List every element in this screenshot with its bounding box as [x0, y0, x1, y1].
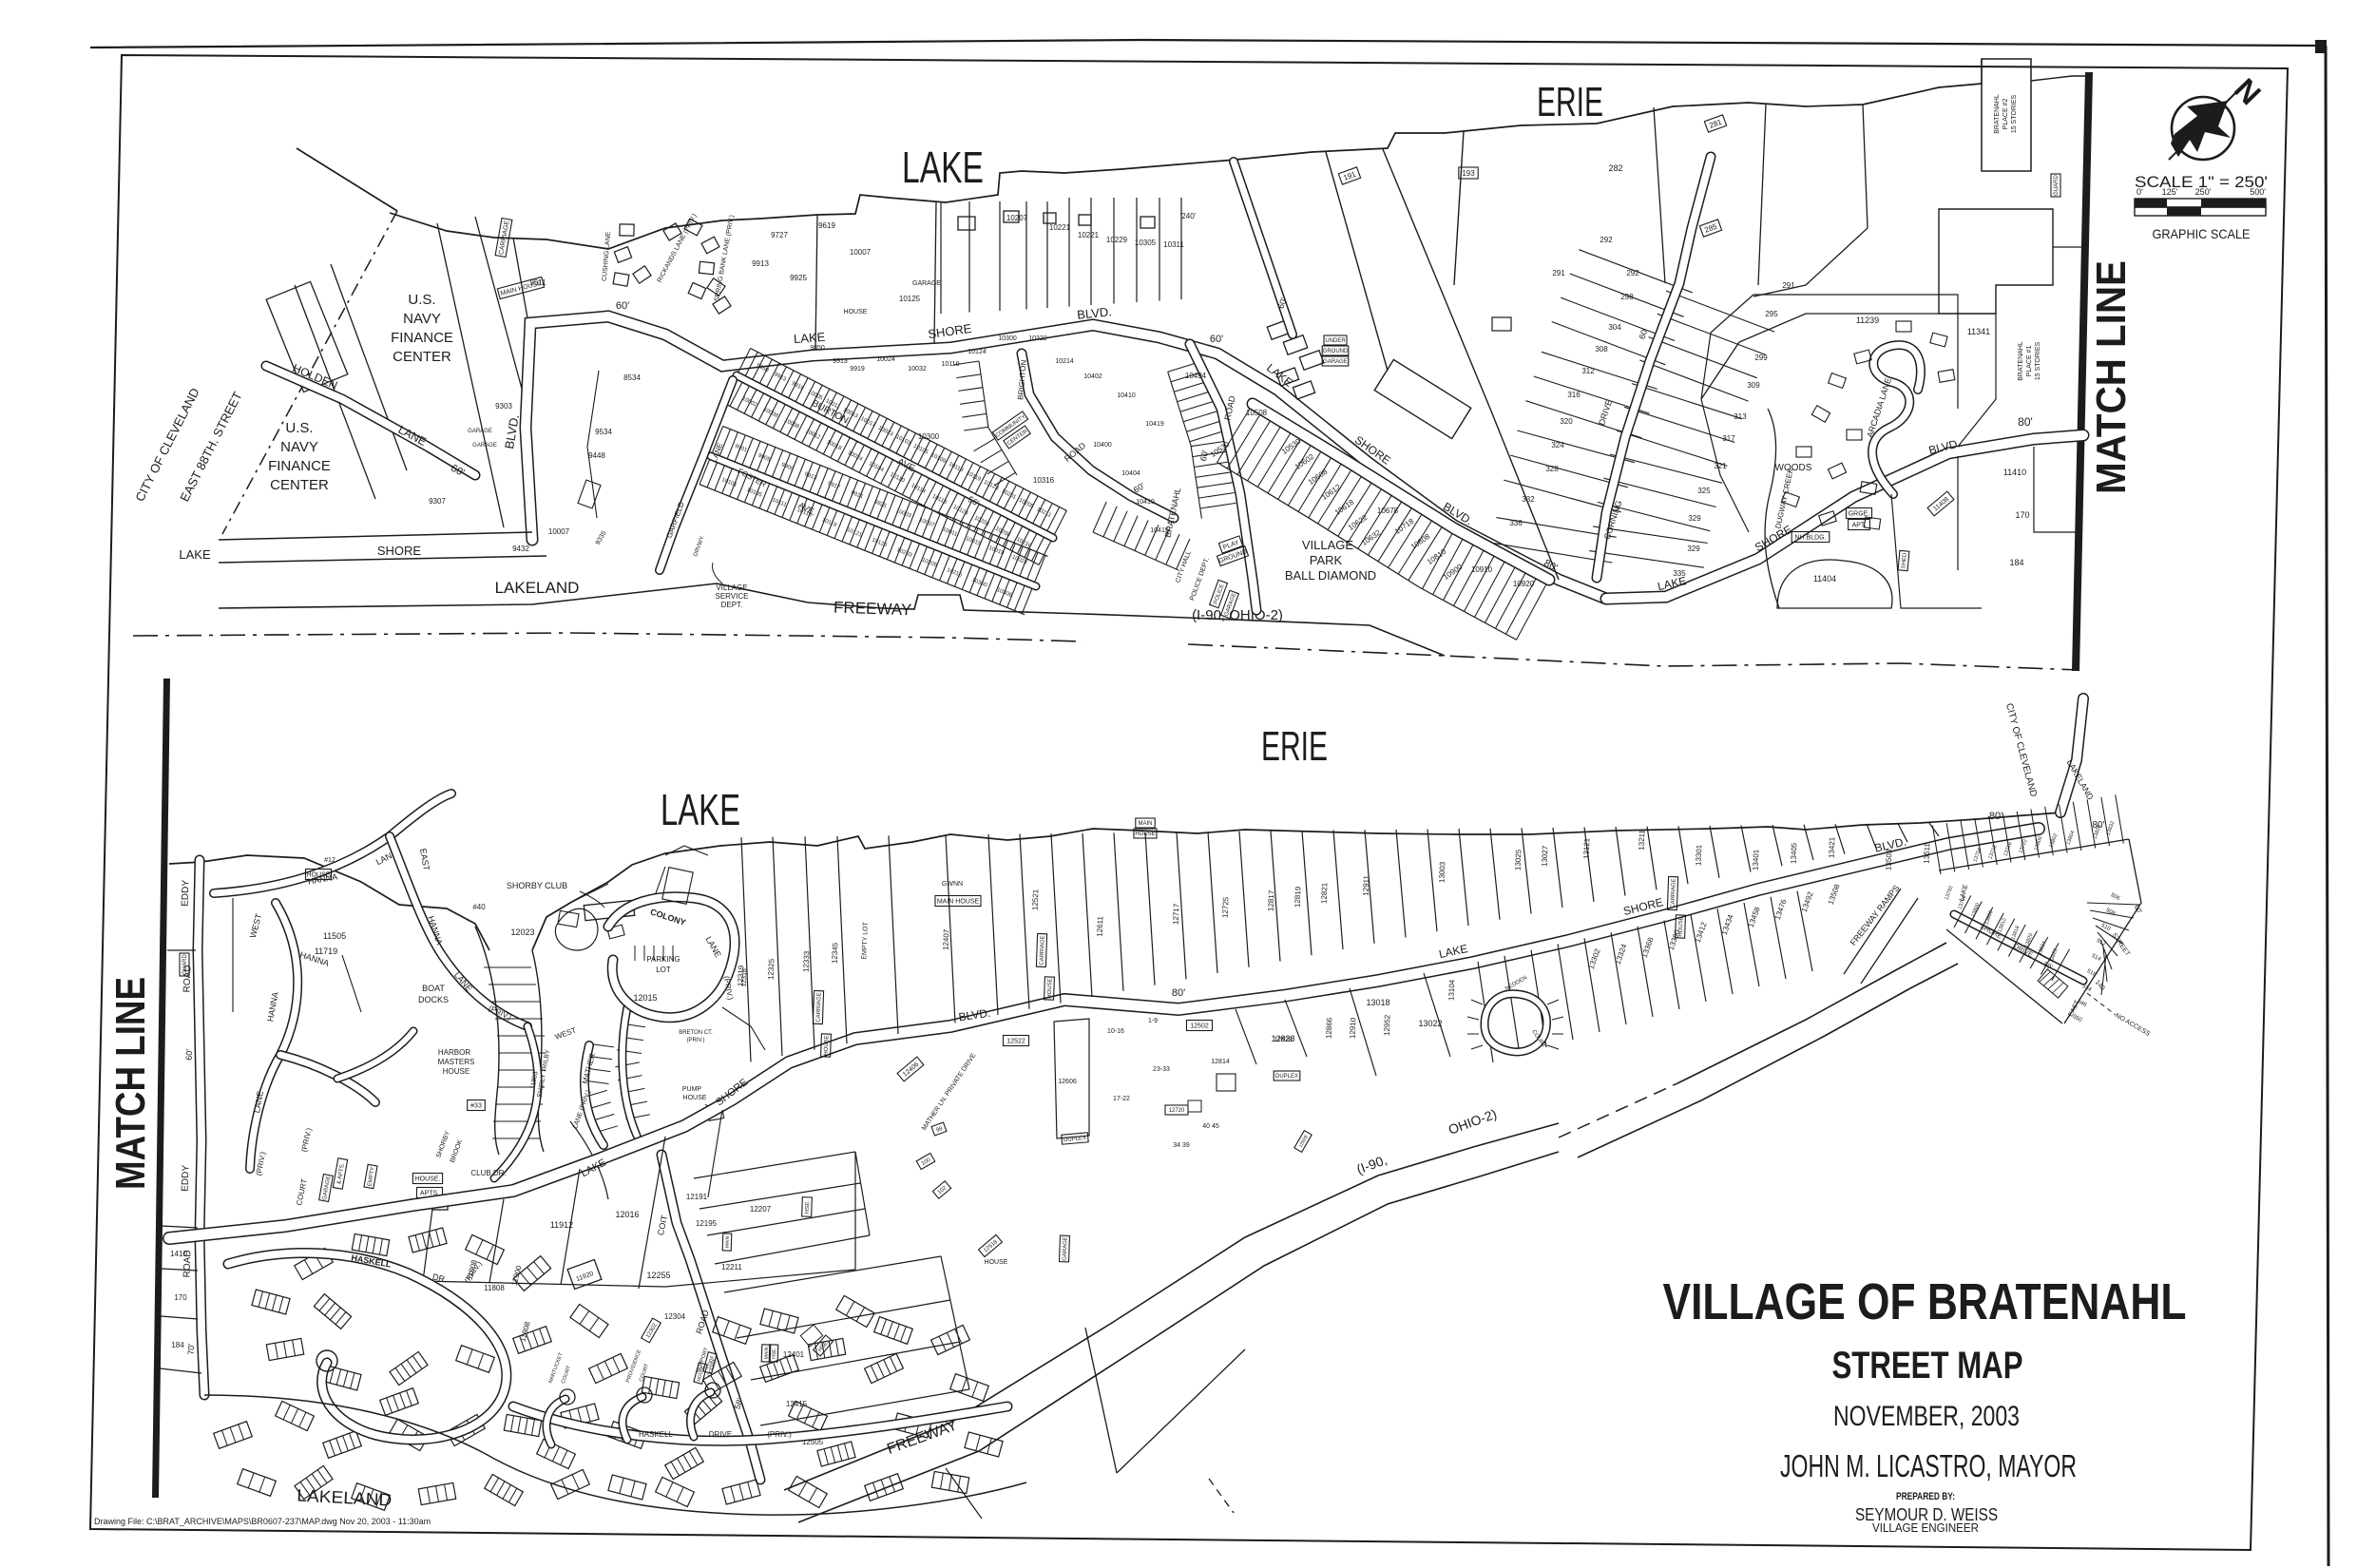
svg-text:10612: 10612 [1320, 483, 1343, 502]
svg-text:Drawing File: C:\BRAT_ARCHIV: Drawing File: C:\BRAT_ARCHIVE\MAPS\BR060… [94, 1517, 431, 1526]
svg-text:13324: 13324 [1614, 943, 1629, 966]
svg-text:13401: 13401 [1752, 849, 1761, 870]
svg-text:PLACE #1: PLACE #1 [2026, 346, 2033, 377]
svg-text:13302: 13302 [1587, 947, 1602, 971]
svg-text:WEST: WEST [554, 1025, 578, 1041]
svg-text:HOUSE: HOUSE [844, 309, 868, 316]
svg-text:12207: 12207 [750, 1205, 772, 1214]
svg-text:CARRIAGE: CARRIAGE [1671, 878, 1677, 908]
svg-text:GWNN: GWNN [942, 881, 963, 888]
svg-text:9511: 9511 [529, 278, 546, 287]
svg-text:336: 336 [1509, 519, 1523, 527]
svg-text:13804: 13804 [2066, 830, 2077, 845]
svg-text:10300: 10300 [998, 335, 1017, 342]
svg-text:#33: #33 [470, 1103, 482, 1110]
svg-text:12211: 12211 [721, 1263, 742, 1272]
svg-text:10124: 10124 [952, 505, 969, 517]
svg-text:12911: 12911 [1362, 874, 1371, 896]
svg-text:13508: 13508 [1827, 883, 1842, 907]
svg-text:13722: 13722 [2019, 838, 2029, 853]
svg-text:12345: 12345 [831, 942, 840, 964]
svg-text:HOUSE: HOUSE [683, 1095, 707, 1101]
svg-text:HOUSE: HOUSE [824, 1035, 831, 1056]
svg-text:11410: 11410 [2003, 468, 2026, 477]
svg-text:12720: 12720 [1169, 1108, 1185, 1114]
svg-text:12611: 12611 [1096, 915, 1105, 937]
svg-text:11341: 11341 [1967, 327, 1990, 336]
svg-text:9335: 9335 [595, 530, 608, 546]
svg-text:12817: 12817 [1267, 889, 1276, 911]
svg-text:DRVWY.: DRVWY. [693, 534, 706, 557]
svg-text:N: N [2228, 72, 2268, 112]
svg-text:GUARD: GUARD [2054, 175, 2060, 196]
svg-text:HSE.: HSE. [805, 1200, 811, 1214]
svg-text:NOVEMBER, 2003: NOVEMBER, 2003 [1833, 1401, 2020, 1432]
svg-text:ROAD: ROAD [1222, 394, 1236, 421]
svg-text:10124: 10124 [968, 349, 987, 355]
svg-text:80': 80' [1989, 811, 2002, 822]
svg-text:11719: 11719 [315, 947, 337, 956]
svg-text:BLVD.: BLVD. [1077, 304, 1113, 322]
svg-text:DRIVE: DRIVE [1597, 398, 1614, 426]
svg-text:LAKE: LAKE [179, 547, 211, 562]
svg-text:15 STORIES: 15 STORIES [2011, 95, 2018, 134]
svg-text:LANE: LANE [452, 970, 474, 993]
svg-text:DRIVE: DRIVE [709, 1430, 732, 1439]
svg-text:10008: 10008 [783, 418, 800, 430]
svg-text:10019: 10019 [987, 545, 1005, 557]
svg-text:'240': '240' [1180, 212, 1197, 220]
svg-text:328: 328 [1545, 465, 1559, 473]
svg-text:10111: 10111 [771, 498, 788, 509]
svg-text:HSE.: HSE. [772, 1348, 777, 1359]
svg-text:15 STORIES: 15 STORIES [2035, 342, 2041, 381]
svg-text:514: 514 [2091, 953, 2102, 963]
svg-text:10221: 10221 [1049, 223, 1071, 232]
svg-text:13476: 13476 [1773, 898, 1789, 922]
svg-text:12016: 12016 [615, 1210, 639, 1219]
svg-text:11912: 11912 [550, 1220, 573, 1230]
svg-text:329: 329 [1688, 514, 1701, 523]
svg-text:BOAT: BOAT [422, 984, 445, 993]
svg-text:DUPLEX: DUPLEX [1275, 1074, 1298, 1080]
svg-text:140: 140 [2094, 979, 2106, 992]
svg-text:MAIN: MAIN [1139, 821, 1153, 827]
svg-text:NH.BLDG.: NH.BLDG. [1794, 535, 1826, 542]
svg-text:COURT: COURT [561, 1365, 573, 1385]
svg-text:17-22: 17-22 [1113, 1096, 1130, 1102]
svg-text:13018: 13018 [1366, 998, 1389, 1007]
svg-text:13421: 13421 [1828, 836, 1837, 858]
svg-text:CARRIAGE: CARRIAGE [816, 992, 823, 1023]
svg-text:10103: 10103 [894, 434, 911, 447]
svg-text:184: 184 [171, 1341, 184, 1349]
svg-text:8534: 8534 [623, 373, 641, 382]
svg-text:10119: 10119 [966, 470, 983, 483]
svg-text:(I-90, OHIO-2): (I-90, OHIO-2) [1192, 607, 1283, 623]
svg-text:10678: 10678 [1377, 507, 1399, 515]
svg-text:295: 295 [1765, 310, 1778, 318]
svg-text:12407: 12407 [942, 928, 951, 950]
svg-text:LAKE: LAKE [902, 143, 984, 192]
svg-text:512: 512 [2096, 938, 2107, 947]
svg-text:U.S.: U.S. [285, 420, 313, 436]
svg-text:12521: 12521 [1031, 889, 1041, 910]
svg-text:OHIO-2): OHIO-2) [1447, 1106, 1499, 1138]
svg-text:COURT: COURT [639, 1363, 651, 1383]
svg-text:U.S.: U.S. [408, 292, 435, 308]
svg-text:MASTERS: MASTERS [438, 1058, 475, 1066]
svg-text:10105: 10105 [912, 444, 929, 456]
svg-text:10024: 10024 [876, 356, 895, 363]
svg-text:10216: 10216 [946, 567, 963, 579]
svg-text:VILLAGE: VILLAGE [716, 583, 747, 592]
svg-text:MATHER LN. PRIVATE DRIVE: MATHER LN. PRIVATE DRIVE [921, 1052, 978, 1132]
svg-text:WEST: WEST [248, 912, 264, 939]
svg-text:13412: 13412 [1694, 921, 1709, 945]
svg-text:13025: 13025 [1514, 849, 1523, 870]
svg-text:GARAGE: GARAGE [1063, 1236, 1069, 1261]
svg-text:10007: 10007 [850, 248, 872, 257]
svg-text:10205: 10205 [921, 558, 938, 569]
svg-text:10400: 10400 [1093, 442, 1112, 449]
svg-text:320: 320 [1560, 417, 1573, 426]
svg-text:BRETON CT.: BRETON CT. [679, 1030, 713, 1036]
svg-text:10125: 10125 [899, 295, 921, 303]
svg-text:9850: 9850 [810, 345, 825, 352]
svg-text:BLVD.: BLVD. [502, 413, 522, 450]
svg-text:10119: 10119 [821, 518, 838, 529]
svg-text:GARAGE: GARAGE [472, 443, 497, 449]
svg-text:#40: #40 [472, 903, 486, 911]
svg-text:250': 250' [2195, 187, 2212, 197]
svg-text:125': 125' [2162, 187, 2178, 197]
svg-text:PARK: PARK [1310, 553, 1343, 567]
svg-text:LANE: LANE [703, 935, 722, 959]
svg-text:304: 304 [1608, 323, 1621, 332]
svg-text:12819: 12819 [1293, 886, 1303, 908]
svg-text:10618: 10618 [1333, 498, 1356, 517]
svg-text:10110: 10110 [889, 472, 906, 485]
svg-text:BALL DIAMOND: BALL DIAMOND [1285, 568, 1376, 583]
svg-text:10920: 10920 [1513, 580, 1535, 588]
svg-text:10007: 10007 [918, 518, 935, 529]
svg-text:170: 170 [2015, 510, 2029, 520]
svg-text:10017: 10017 [859, 416, 876, 429]
svg-text:10203: 10203 [896, 547, 913, 559]
svg-text:12725: 12725 [1221, 896, 1231, 918]
svg-text:40 45: 40 45 [1202, 1123, 1219, 1130]
svg-text:13800: 13800 [2034, 835, 2044, 851]
svg-text:LAKE: LAKE [661, 785, 740, 834]
svg-text:13503: 13503 [1885, 849, 1894, 870]
svg-text:SHED: SHED [1901, 552, 1907, 569]
svg-text:GRGE.: GRGE. [1849, 511, 1870, 518]
svg-text:RICKANDS LANE (PRIV.): RICKANDS LANE (PRIV.) [657, 213, 699, 284]
svg-text:FREEWAY RAMPS: FREEWAY RAMPS [1849, 883, 1902, 947]
svg-text:9925: 9925 [790, 274, 807, 282]
svg-text:13301: 13301 [1695, 844, 1704, 866]
svg-text:10105: 10105 [746, 488, 763, 499]
svg-text:LANE: LANE [396, 423, 429, 449]
svg-text:CUSHING LANE: CUSHING LANE [602, 231, 613, 281]
svg-text:10-16: 10-16 [1107, 1028, 1124, 1035]
svg-text:10900: 10900 [1442, 563, 1465, 582]
svg-text:10221: 10221 [1078, 231, 1100, 239]
svg-text:12023: 12023 [510, 927, 534, 937]
svg-text:10032: 10032 [908, 366, 927, 373]
svg-text:ERIE: ERIE [1261, 723, 1328, 770]
svg-text:13820: 13820 [2024, 932, 2035, 947]
svg-text:291: 291 [1552, 269, 1565, 277]
svg-text:PUMP: PUMP [682, 1086, 702, 1093]
svg-text:9913: 9913 [833, 358, 848, 365]
svg-text:APT.: APT. [1852, 523, 1867, 529]
svg-text:292: 292 [1626, 269, 1639, 277]
svg-text:10024: 10024 [847, 450, 864, 463]
svg-text:SHORBY CLUB: SHORBY CLUB [507, 881, 567, 890]
svg-text:12318: 12318 [741, 968, 749, 987]
svg-text:60': 60' [184, 1049, 194, 1061]
svg-text:9303: 9303 [495, 402, 512, 411]
svg-text:GROUND: GROUND [1323, 349, 1349, 354]
svg-text:EMPTY: EMPTY [367, 1166, 375, 1186]
svg-text:FINANCE: FINANCE [391, 330, 453, 346]
svg-text:12522: 12522 [1006, 1039, 1025, 1045]
svg-text:12910: 12910 [1349, 1017, 1358, 1039]
svg-text:GUARD: GUARD [182, 954, 188, 975]
svg-text:9448: 9448 [588, 451, 605, 460]
svg-text:10008: 10008 [762, 407, 779, 419]
svg-text:10207: 10207 [1006, 214, 1028, 222]
svg-text:12866: 12866 [1325, 1017, 1334, 1039]
svg-text:SPRING BANK LANE (PRIV.): SPRING BANK LANE (PRIV.) [714, 215, 736, 302]
svg-text:LAKELAND: LAKELAND [495, 579, 580, 597]
svg-text:EAST: EAST [418, 848, 431, 871]
svg-text:GARAGE: GARAGE [1323, 359, 1348, 365]
svg-text:500': 500' [2250, 187, 2266, 197]
svg-text:9909: 9909 [780, 462, 795, 472]
svg-text:LOT: LOT [656, 966, 671, 974]
svg-text:550: 550 [2072, 1014, 2083, 1023]
svg-text:GRAPHIC SCALE: GRAPHIC SCALE [2153, 226, 2251, 241]
svg-text:332: 332 [1522, 495, 1535, 504]
svg-text:325: 325 [1697, 487, 1711, 495]
svg-text:EDDY: EDDY [181, 880, 192, 907]
svg-text:10415: 10415 [1150, 527, 1169, 534]
svg-text:12325: 12325 [767, 958, 776, 980]
svg-text:70': 70' [186, 1344, 196, 1355]
svg-text:60': 60' [616, 300, 629, 312]
svg-text:13832: 13832 [2106, 820, 2117, 835]
svg-text:10316: 10316 [1033, 476, 1055, 485]
svg-text:EMPTY LOT: EMPTY LOT [861, 921, 869, 959]
svg-text:13104: 13104 [1447, 979, 1457, 1001]
svg-text:BRATENAHL: BRATENAHL [2018, 341, 2024, 381]
svg-text:13792: 13792 [1945, 885, 1955, 900]
svg-text:13458: 13458 [1747, 906, 1762, 929]
svg-text:9619: 9619 [818, 221, 835, 230]
svg-text:COURT: COURT [295, 1178, 309, 1207]
svg-text:CENTER: CENTER [270, 477, 329, 493]
svg-text:312: 312 [1581, 367, 1595, 375]
svg-text:VILLAGE ENGINEER: VILLAGE ENGINEER [1872, 1520, 1979, 1535]
svg-text:506: 506 [2110, 892, 2121, 902]
svg-text:298: 298 [1620, 293, 1634, 301]
svg-text:9534: 9534 [595, 428, 612, 436]
svg-text:0': 0' [2136, 187, 2143, 197]
svg-text:PREPARED BY:: PREPARED BY: [1896, 1491, 1955, 1502]
svg-text:HOUSE: HOUSE [443, 1067, 469, 1076]
svg-text:13390: 13390 [1667, 928, 1682, 952]
svg-text:9913: 9913 [752, 259, 769, 268]
svg-text:10110: 10110 [942, 361, 960, 368]
svg-text:13368: 13368 [1640, 936, 1656, 960]
svg-text:10530: 10530 [1280, 437, 1303, 456]
svg-text:10810: 10810 [1426, 547, 1448, 566]
svg-text:308: 308 [1595, 345, 1608, 354]
svg-text:316: 316 [1567, 391, 1581, 399]
svg-text:11239: 11239 [1856, 316, 1879, 325]
svg-text:10007: 10007 [548, 527, 570, 536]
svg-text:HOUSE: HOUSE [307, 872, 331, 879]
svg-text:NAVY: NAVY [403, 311, 441, 327]
svg-text:(PRIV.): (PRIV.) [255, 1151, 267, 1176]
svg-text:13828: 13828 [2049, 947, 2060, 963]
svg-text:SHORBY: SHORBY [435, 1130, 451, 1158]
svg-text:12814: 12814 [1211, 1059, 1230, 1065]
svg-text:12255: 12255 [646, 1271, 670, 1280]
svg-text:329: 329 [1687, 545, 1700, 553]
svg-text:VILLAGE: VILLAGE [1302, 538, 1354, 552]
svg-text:11505: 11505 [323, 931, 346, 941]
svg-text:10622: 10622 [1347, 513, 1370, 532]
svg-text:CLUB DR.: CLUB DR. [470, 1169, 506, 1177]
svg-text:10121: 10121 [846, 527, 863, 539]
svg-text:534: 534 [2081, 984, 2093, 993]
svg-text:11920: 11920 [575, 1271, 594, 1283]
svg-text:HARBOR: HARBOR [438, 1048, 470, 1057]
svg-text:10419: 10419 [1145, 421, 1164, 428]
svg-text:13003: 13003 [1438, 861, 1447, 883]
svg-text:9913: 9913 [773, 372, 787, 383]
svg-text:13716: 13716 [2003, 841, 2014, 856]
svg-text:DUGWAY CREEK: DUGWAY CREEK [1773, 467, 1794, 529]
svg-text:13434: 13434 [1720, 913, 1735, 937]
svg-text:11808: 11808 [484, 1284, 505, 1292]
svg-text:GARAGE: GARAGE [468, 429, 492, 434]
svg-text:BROOK: BROOK [450, 1138, 464, 1163]
svg-text:10494: 10494 [1185, 372, 1207, 380]
svg-text:10229: 10229 [1106, 236, 1128, 244]
svg-text:10404: 10404 [1121, 470, 1140, 477]
svg-text:DOCKS: DOCKS [418, 995, 449, 1004]
svg-text:12606: 12606 [1058, 1079, 1077, 1085]
svg-text:10306: 10306 [996, 587, 1013, 599]
svg-text:13712: 13712 [1988, 844, 1999, 859]
svg-text:DEPT.: DEPT. [721, 601, 743, 609]
svg-text:10410: 10410 [1117, 392, 1136, 399]
svg-text:10125: 10125 [871, 538, 888, 549]
svg-text:(PRIV.): (PRIV.) [300, 1127, 314, 1153]
svg-text:12195: 12195 [696, 1219, 718, 1228]
svg-text:1410: 1410 [170, 1250, 187, 1258]
svg-text:100: 100 [921, 1157, 932, 1168]
svg-text:12415: 12415 [786, 1400, 808, 1408]
svg-text:10300: 10300 [918, 432, 940, 441]
svg-text:10300: 10300 [970, 578, 987, 589]
svg-text:12191: 12191 [686, 1193, 708, 1201]
svg-text:POLICE DEPT.: POLICE DEPT. [1189, 557, 1211, 602]
svg-text:9307: 9307 [429, 497, 446, 506]
svg-text:60': 60' [1210, 334, 1223, 345]
svg-text:MATCH LINE: MATCH LINE [2088, 260, 2135, 494]
svg-text:LAKE: LAKE [794, 330, 827, 346]
svg-text:CITY OF CLEVELAND: CITY OF CLEVELAND [2003, 702, 2039, 798]
svg-text:13211: 13211 [1638, 829, 1647, 851]
svg-text:12952: 12952 [1383, 1014, 1392, 1036]
svg-text:PLACE #2: PLACE #2 [2002, 99, 2009, 130]
svg-text:80': 80' [1172, 987, 1185, 999]
svg-text:STREET MAP: STREET MAP [1832, 1345, 2023, 1386]
svg-text:MATCH LINE: MATCH LINE [107, 977, 154, 1190]
svg-text:12717: 12717 [1172, 903, 1181, 925]
svg-text:HANNA: HANNA [265, 991, 279, 1023]
svg-text:313: 313 [1734, 412, 1747, 421]
svg-text:518: 518 [2086, 968, 2098, 978]
svg-text:13492: 13492 [1800, 890, 1815, 914]
svg-text:FREEWAY: FREEWAY [834, 599, 912, 620]
svg-text:9432: 9432 [512, 545, 529, 553]
svg-text:NO ACCESS: NO ACCESS [2114, 1012, 2151, 1038]
svg-text:13808: 13808 [1984, 909, 1995, 925]
svg-text:9905: 9905 [757, 453, 772, 464]
svg-text:COIT: COIT [656, 1214, 669, 1236]
svg-text:80': 80' [2018, 415, 2033, 429]
svg-text:9727: 9727 [771, 231, 788, 239]
svg-text:292: 292 [1600, 236, 1613, 244]
svg-text:ERIE: ERIE [1537, 79, 1603, 125]
svg-text:184: 184 [2009, 558, 2023, 567]
svg-text:321: 321 [1714, 462, 1727, 470]
svg-text:EDDY: EDDY [181, 1165, 192, 1192]
svg-text:11404: 11404 [1813, 574, 1836, 583]
svg-text:GARAGE: GARAGE [912, 280, 941, 287]
svg-text:12333: 12333 [802, 950, 812, 972]
svg-text:10322: 10322 [1028, 335, 1047, 342]
svg-text:317: 317 [1722, 434, 1735, 443]
svg-text:9925: 9925 [873, 500, 888, 510]
svg-text:10216: 10216 [1015, 537, 1032, 549]
svg-text:(PRIV.): (PRIV.) [767, 1430, 792, 1439]
svg-text:60': 60' [1638, 327, 1650, 341]
svg-text:10214: 10214 [1055, 358, 1074, 365]
svg-text:10910: 10910 [1471, 565, 1493, 574]
svg-text:60': 60' [1198, 449, 1210, 462]
svg-text:23-33: 23-33 [1153, 1066, 1170, 1073]
svg-text:HASKELL: HASKELL [639, 1430, 674, 1439]
svg-text:1-9: 1-9 [1148, 1018, 1158, 1024]
svg-text:VILLAGE OF BRATENAHL: VILLAGE OF BRATENAHL [1663, 1273, 2187, 1330]
svg-text:12502: 12502 [1190, 1023, 1209, 1030]
svg-text:9901: 9901 [734, 444, 748, 454]
svg-text:13121: 13121 [1582, 837, 1592, 859]
svg-text:13816: 13816 [2011, 925, 2022, 940]
svg-text:COLONY: COLONY [649, 907, 687, 927]
svg-text:CENTER: CENTER [393, 349, 451, 365]
svg-text:CARRIAGE: CARRIAGE [1040, 935, 1046, 966]
svg-text:MAIN: MAIN [725, 1235, 731, 1248]
